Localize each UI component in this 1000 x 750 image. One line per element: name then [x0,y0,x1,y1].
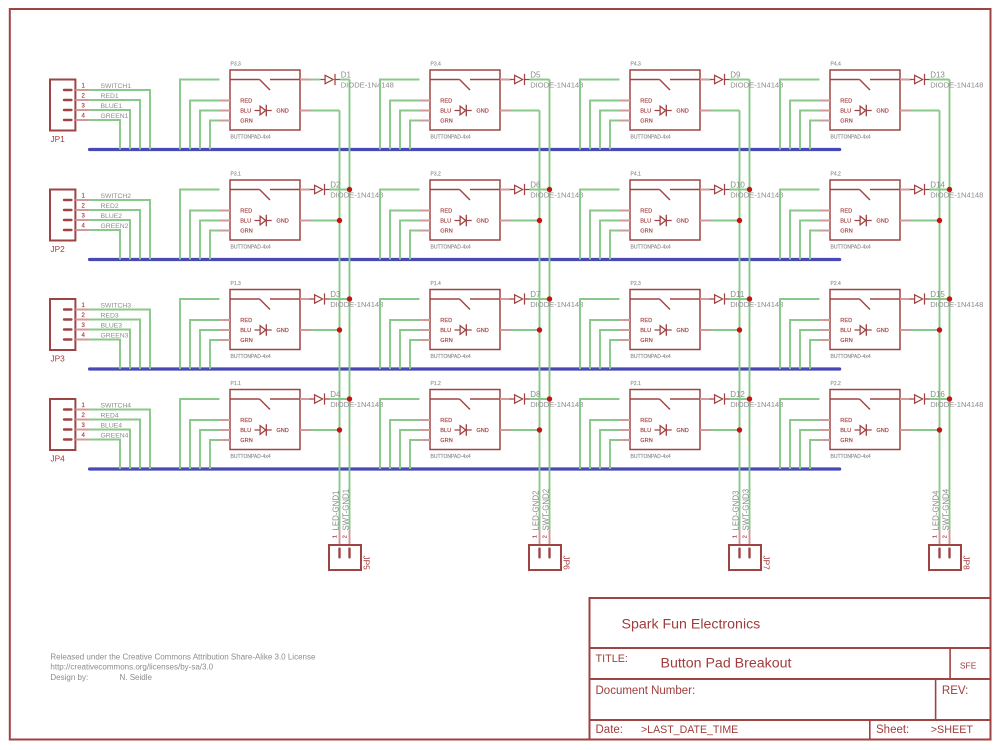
svg-text:D11: D11 [730,290,745,299]
svg-text:D4: D4 [330,390,341,399]
svg-text:Released under the Creative Co: Released under the Creative Commons Attr… [50,652,316,661]
svg-text:LED-GND2: LED-GND2 [532,491,541,531]
svg-text:DIODE-1N4148: DIODE-1N4148 [930,300,983,309]
svg-text:P3.3: P3.3 [231,62,242,68]
svg-text:DIODE-1N4148: DIODE-1N4148 [530,400,583,409]
svg-text:P1.4: P1.4 [431,281,442,287]
svg-text:Spark Fun Electronics: Spark Fun Electronics [622,616,761,632]
svg-text:DIODE-1N4148: DIODE-1N4148 [330,400,383,409]
svg-text:DIODE-1N4148: DIODE-1N4148 [530,300,583,309]
svg-text:JP4: JP4 [51,454,66,464]
svg-text:DIODE-1N4148: DIODE-1N4148 [341,80,394,89]
svg-text:P2.2: P2.2 [831,381,842,387]
svg-text:1: 1 [932,535,938,538]
svg-text:Document Number:: Document Number: [596,685,696,697]
svg-text:D9: D9 [730,71,741,80]
svg-text:DIODE-1N4148: DIODE-1N4148 [330,300,383,309]
svg-text:Date:: Date: [596,724,624,736]
svg-text:P4.2: P4.2 [831,172,842,178]
svg-text:RED4: RED4 [101,412,119,419]
svg-text:DIODE-1N4148: DIODE-1N4148 [530,80,583,89]
svg-text:1: 1 [732,535,738,538]
svg-text:GREEN3: GREEN3 [101,332,129,339]
svg-text:P1.1: P1.1 [231,381,242,387]
svg-text:DIODE-1N4148: DIODE-1N4148 [730,400,783,409]
svg-text:Sheet:: Sheet: [876,724,909,736]
svg-text:JP5: JP5 [362,556,372,571]
svg-text:N. Seidle: N. Seidle [120,673,153,682]
svg-text:JP3: JP3 [51,354,66,364]
svg-text:JP6: JP6 [562,556,572,571]
svg-text:P4.1: P4.1 [631,172,642,178]
svg-text:D10: D10 [730,181,745,190]
svg-text:D6: D6 [530,181,541,190]
svg-text:SWITCH1: SWITCH1 [101,83,132,90]
svg-text:SWT-GND4: SWT-GND4 [942,488,951,530]
svg-text:BLUE1: BLUE1 [101,103,123,110]
svg-text:DIODE-1N4148: DIODE-1N4148 [330,190,383,199]
svg-text:>SHEET: >SHEET [931,724,974,736]
svg-text:P2.1: P2.1 [631,381,642,387]
svg-text:2: 2 [942,535,948,538]
svg-text:P2.4: P2.4 [831,281,842,287]
svg-text:D5: D5 [530,71,541,80]
svg-text:SWT-GND3: SWT-GND3 [742,488,751,530]
svg-text:TITLE:: TITLE: [596,653,628,665]
svg-text:P3.1: P3.1 [231,172,242,178]
svg-text:RED2: RED2 [101,203,119,210]
svg-text:SWITCH3: SWITCH3 [101,302,132,309]
svg-text:REV:: REV: [942,685,968,697]
svg-text:D12: D12 [730,390,745,399]
svg-text:JP1: JP1 [51,134,66,144]
svg-text:http://creativecommons.org/lic: http://creativecommons.org/licenses/by-s… [50,663,213,672]
svg-text:D1: D1 [341,71,352,80]
svg-text:D3: D3 [330,290,341,299]
svg-text:SWITCH2: SWITCH2 [101,193,132,200]
svg-text:>LAST_DATE_TIME: >LAST_DATE_TIME [641,724,738,736]
svg-text:P1.3: P1.3 [231,281,242,287]
svg-text:BLUE4: BLUE4 [101,422,123,429]
svg-text:2: 2 [342,535,348,538]
svg-text:D7: D7 [530,290,541,299]
svg-text:SWITCH4: SWITCH4 [101,402,132,409]
svg-text:RED3: RED3 [101,312,119,319]
svg-text:JP8: JP8 [962,556,972,571]
svg-text:D8: D8 [530,390,541,399]
svg-text:LED-GND3: LED-GND3 [732,490,741,531]
svg-text:P4.3: P4.3 [631,62,642,68]
svg-text:DIODE-1N4148: DIODE-1N4148 [730,300,783,309]
svg-text:Design by:: Design by: [50,673,88,682]
svg-text:DIODE-1N4148: DIODE-1N4148 [930,80,983,89]
svg-text:BLUE2: BLUE2 [101,213,123,220]
svg-text:D16: D16 [930,390,945,399]
svg-text:DIODE-1N4148: DIODE-1N4148 [730,80,783,89]
svg-text:D15: D15 [930,290,945,299]
svg-text:2: 2 [742,535,748,538]
svg-text:JP2: JP2 [51,244,66,254]
svg-text:GREEN1: GREEN1 [101,113,129,120]
svg-text:GREEN4: GREEN4 [101,432,129,439]
svg-text:P3.2: P3.2 [431,172,442,178]
svg-text:SWT-GND2: SWT-GND2 [542,489,551,531]
svg-text:BLUE3: BLUE3 [101,322,123,329]
svg-text:DIODE-1N4148: DIODE-1N4148 [730,190,783,199]
svg-text:D13: D13 [930,71,945,80]
svg-text:SWT-GND1: SWT-GND1 [342,489,351,531]
svg-text:DIODE-1N4148: DIODE-1N4148 [930,400,983,409]
svg-text:LED-GND4: LED-GND4 [932,490,941,531]
svg-text:D2: D2 [330,181,341,190]
svg-text:RED1: RED1 [101,93,119,100]
svg-text:P1.2: P1.2 [431,381,442,387]
svg-text:P3.4: P3.4 [431,62,442,68]
svg-text:2: 2 [542,535,548,538]
svg-text:D14: D14 [930,181,945,190]
svg-text:LED-GND1: LED-GND1 [332,491,341,531]
svg-text:DIODE-1N4148: DIODE-1N4148 [530,190,583,199]
svg-text:JP7: JP7 [762,556,772,571]
svg-text:Button Pad Breakout: Button Pad Breakout [661,655,792,671]
svg-text:P4.4: P4.4 [831,62,842,68]
svg-text:P2.3: P2.3 [631,281,642,287]
svg-text:SFE: SFE [960,660,977,670]
svg-text:1: 1 [532,535,538,538]
svg-text:DIODE-1N4148: DIODE-1N4148 [930,190,983,199]
svg-text:GREEN2: GREEN2 [101,223,129,230]
svg-text:1: 1 [332,535,338,538]
